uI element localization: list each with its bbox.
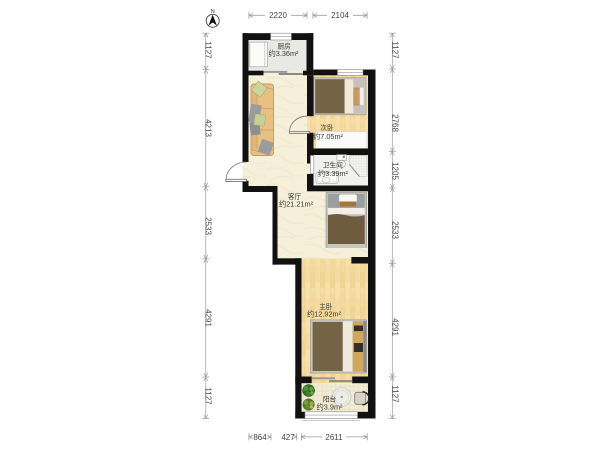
svg-text:4213: 4213 — [204, 119, 213, 137]
svg-text:2768: 2768 — [391, 114, 400, 132]
svg-text:约21.21m²: 约21.21m² — [279, 199, 314, 208]
svg-text:2104: 2104 — [331, 11, 349, 20]
svg-text:1127: 1127 — [204, 41, 213, 59]
svg-text:2533: 2533 — [391, 221, 400, 239]
svg-text:4291: 4291 — [204, 309, 213, 327]
svg-text:2611: 2611 — [325, 433, 343, 442]
svg-text:约3.36m²: 约3.36m² — [268, 49, 299, 58]
svg-text:1127: 1127 — [204, 387, 213, 405]
svg-text:864: 864 — [253, 433, 267, 442]
svg-text:次卧: 次卧 — [320, 123, 334, 132]
svg-text:2533: 2533 — [204, 217, 213, 235]
svg-text:1127: 1127 — [391, 41, 400, 59]
svg-text:1205: 1205 — [391, 162, 400, 180]
svg-text:约3.9m²: 约3.9m² — [317, 402, 344, 411]
svg-text:约7.05m²: 约7.05m² — [313, 132, 344, 141]
svg-text:约12.92m²: 约12.92m² — [307, 309, 342, 318]
svg-text:427: 427 — [281, 433, 295, 442]
svg-text:约3.39m²: 约3.39m² — [318, 169, 349, 178]
svg-text:2220: 2220 — [269, 11, 287, 20]
svg-text:1127: 1127 — [391, 385, 400, 403]
svg-text:N: N — [211, 9, 215, 15]
svg-text:4291: 4291 — [391, 318, 400, 336]
